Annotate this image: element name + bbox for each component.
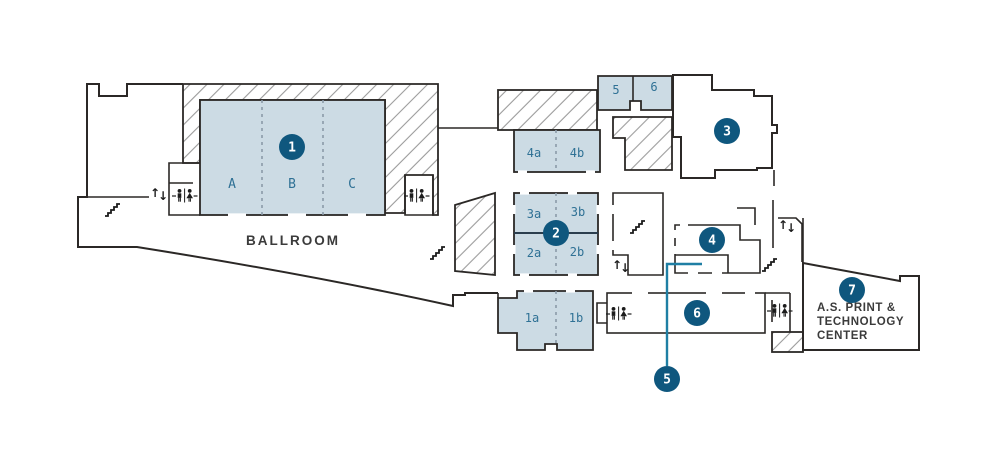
marker-7: 7 [839, 277, 865, 303]
stairs-icon [630, 221, 645, 233]
room-2a-label: 2a [527, 246, 541, 260]
room-5-label: 5 [612, 83, 619, 97]
print-center-line2: TECHNOLOGY [817, 316, 904, 328]
room-1a-label: 1a [525, 311, 539, 325]
room-1b-label: 1b [569, 311, 583, 325]
print-center-line3: CENTER [817, 330, 868, 342]
ballroom-section-b: B [288, 177, 296, 192]
room-3a-label: 3a [527, 207, 541, 221]
hatched-area-parallelogram [455, 193, 495, 275]
marker-4: 4 [699, 227, 725, 253]
floor-plan: A B C BALLROOM 4a 4b 5 6 3a 3b 2a 2b [0, 0, 1000, 457]
restroom-icon [172, 189, 198, 203]
ballroom-section-a: A [228, 177, 236, 192]
marker-1: 1 [279, 134, 305, 160]
restroom-icon [606, 307, 632, 321]
ballroom-caption: BALLROOM [246, 233, 340, 248]
svg-text:5: 5 [663, 373, 671, 388]
room-6-restroom-alcove [597, 303, 607, 323]
room-4b-label: 4b [570, 146, 584, 160]
svg-text:4: 4 [708, 234, 716, 249]
hatched-area-above-4a [498, 90, 597, 130]
stairs-icon [762, 259, 777, 271]
svg-text:↓: ↓ [158, 189, 168, 203]
print-center-line1: A.S. PRINT & [817, 302, 896, 314]
hatched-area-mid [613, 117, 672, 170]
svg-text:2: 2 [552, 227, 560, 242]
room-4a-label: 4a [527, 146, 541, 160]
marker-3: 3 [714, 118, 740, 144]
svg-text:6: 6 [693, 307, 701, 322]
marker-6: 6 [684, 300, 710, 326]
room-4-upper-box [737, 208, 755, 225]
svg-text:1: 1 [288, 141, 296, 156]
restroom-icon [404, 189, 430, 203]
svg-text:3: 3 [723, 125, 731, 140]
floor-plan-canvas: A B C BALLROOM 4a 4b 5 6 3a 3b 2a 2b [0, 0, 1000, 457]
wall-restroom-right-of-ballroom [405, 175, 433, 215]
room-6-top-label: 6 [650, 80, 657, 94]
elevator-icon: ↑ ↓ [612, 258, 630, 275]
svg-text:↓: ↓ [620, 261, 630, 275]
elevator-icon: ↑ ↓ [778, 218, 796, 235]
marker-5: 5 [654, 366, 680, 392]
room-3b-label: 3b [571, 205, 585, 219]
hatched-area-bottom-right [772, 332, 803, 352]
room-5-6 [598, 76, 672, 110]
stairs-icon [430, 247, 445, 259]
restroom-icon [767, 304, 793, 318]
svg-text:↓: ↓ [786, 221, 796, 235]
marker-2: 2 [543, 220, 569, 246]
stairs-icon [105, 204, 120, 216]
svg-text:7: 7 [848, 284, 856, 299]
elevator-icon: ↑ ↓ [150, 186, 168, 203]
room-2b-label: 2b [570, 245, 584, 259]
ballroom-section-c: C [348, 177, 356, 192]
